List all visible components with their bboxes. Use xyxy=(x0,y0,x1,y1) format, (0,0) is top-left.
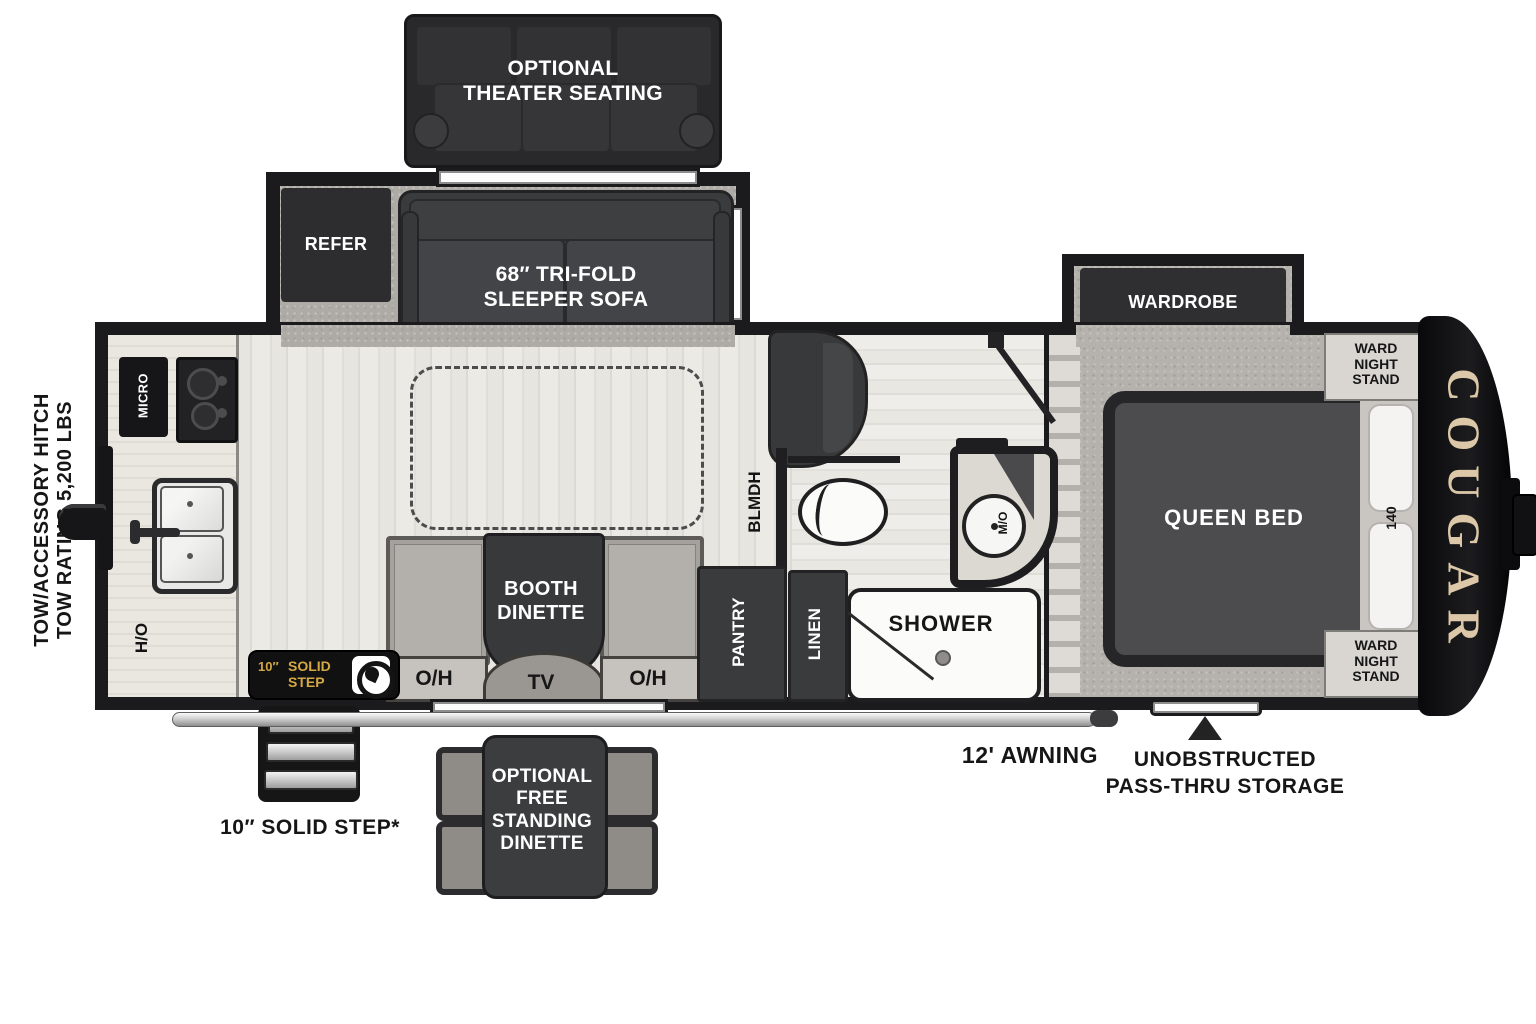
passthru-label: UNOBSTRUCTED PASS-THRU STORAGE xyxy=(1105,746,1345,801)
pantry-label: PANTRY xyxy=(729,577,749,687)
ward-night-stand: WARDNIGHTSTAND xyxy=(1324,630,1432,698)
passthru-arrow-icon xyxy=(1188,716,1222,740)
door-hinge xyxy=(988,332,1004,348)
theater-seating: OPTIONAL THEATER SEATING xyxy=(404,14,722,168)
step-badge-size: 10″ xyxy=(258,659,288,675)
optional-footprint-outline xyxy=(410,366,704,530)
refer-label: REFER xyxy=(281,234,391,255)
burner-icon xyxy=(191,402,219,430)
kitchen-ho-label: H/O xyxy=(132,588,152,688)
faucet-icon xyxy=(134,528,180,537)
sofa-label: 68″ TRI-FOLD SLEEPER SOFA xyxy=(401,263,731,313)
burner-icon xyxy=(187,368,219,400)
hitch-rating-label: TOW/ACCESSORY HITCH TOW RATING 5,200 LBS xyxy=(31,370,83,670)
theater-seating-label: OPTIONAL THEATER SEATING xyxy=(407,57,719,107)
dinette-table: OPTIONAL FREE STANDING DINETTE xyxy=(482,735,608,899)
shower-drain-icon xyxy=(935,650,951,666)
hitch-pin-knob xyxy=(1512,494,1536,556)
dinette-bench xyxy=(386,536,490,666)
refrigerator: REFER xyxy=(281,188,391,302)
sofa-back xyxy=(409,199,721,241)
sink-basin xyxy=(160,486,224,532)
ward-night-stand: WARDNIGHTSTAND xyxy=(1324,333,1432,401)
slideout-window xyxy=(436,168,700,187)
knob-icon xyxy=(217,408,227,418)
solid-step-badge: 10″ SOLID STEP xyxy=(248,650,400,700)
linen-label: LINEN xyxy=(805,579,825,689)
awning-rail-end xyxy=(1090,710,1118,727)
microwave-label: MICRO xyxy=(135,346,150,446)
drain-icon xyxy=(187,501,193,507)
brand-logo: COUGAR xyxy=(1438,313,1491,713)
theater-armrest xyxy=(679,113,715,149)
queen-bed-label: QUEEN BED xyxy=(1115,505,1353,531)
shower: SHOWER xyxy=(847,588,1041,702)
towel-bar xyxy=(788,456,900,463)
step-badge-text: SOLID STEP xyxy=(288,658,350,690)
toilet xyxy=(798,478,888,546)
sink-basin xyxy=(160,535,224,583)
floorplan-canvas: OPTIONAL THEATER SEATING REFER 68″ TRI-F… xyxy=(0,0,1536,1024)
tv-label: TV xyxy=(486,671,596,695)
oh-label: O/H xyxy=(389,667,479,691)
shower-label: SHOWER xyxy=(851,612,1031,637)
theater-armrest xyxy=(413,113,449,149)
bath-faucet-icon xyxy=(956,438,1008,450)
overhead-cabinet: O/H xyxy=(600,656,702,702)
chair-seat xyxy=(823,343,853,453)
knob-icon xyxy=(217,376,227,386)
free-standing-dinette: OPTIONAL FREE STANDING DINETTE xyxy=(430,735,660,895)
dinette-bench xyxy=(600,536,704,666)
bed-dimension-label: 140 xyxy=(1383,463,1399,573)
queen-bed: QUEEN BED xyxy=(1103,391,1389,667)
chair-note-label: BLMDH xyxy=(745,447,765,557)
step-logo-icon xyxy=(352,656,390,694)
drain-icon xyxy=(187,553,193,559)
oh-label: O/H xyxy=(603,667,693,691)
awning-rail xyxy=(172,712,1096,727)
wardrobe-opening-floor xyxy=(1076,325,1290,347)
bath-sink-label: M/O xyxy=(996,468,1010,578)
slide-opening-floor xyxy=(281,325,735,347)
faucet-base-icon xyxy=(130,520,140,544)
awning-label: 12' AWNING xyxy=(940,742,1120,769)
bath-sink-basin xyxy=(962,494,1026,558)
passthru-hatch xyxy=(1150,699,1262,716)
bath-wall xyxy=(776,448,787,570)
toilet-seat-line xyxy=(812,483,841,538)
cooktop xyxy=(176,357,238,443)
solid-step-caption: 10″ SOLID STEP* xyxy=(200,816,420,840)
ward-night-stand-label: WARDNIGHTSTAND xyxy=(1326,341,1426,388)
wardrobe-label: WARDROBE xyxy=(1080,292,1286,313)
free-dinette-label: OPTIONAL FREE STANDING DINETTE xyxy=(485,766,599,856)
ward-night-stand-label: WARDNIGHTSTAND xyxy=(1326,638,1426,685)
overhead-cabinet: O/H xyxy=(386,656,488,702)
booth-dinette-label: BOOTH DINETTE xyxy=(486,578,596,625)
